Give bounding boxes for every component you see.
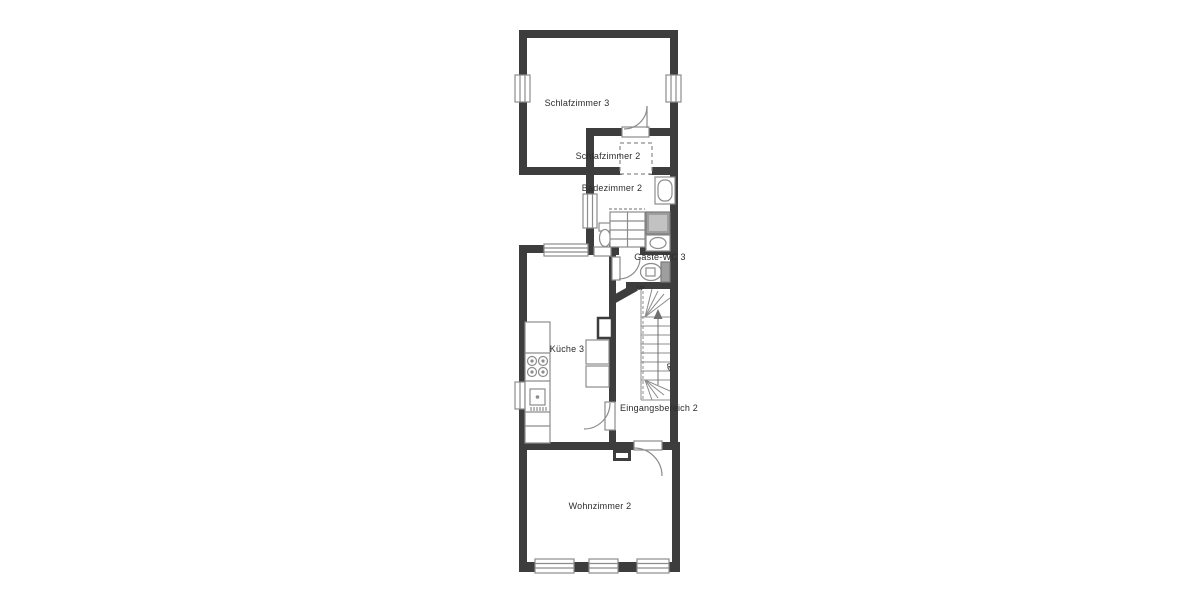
- wall: [672, 442, 680, 572]
- room-label-bathroom2: Badezimmer 2: [562, 183, 662, 193]
- stair-up-label-top: UP: [637, 286, 645, 292]
- door-living-room: [634, 441, 662, 476]
- door-bedroom: [622, 106, 649, 137]
- room-label-living: Wohnzimmer 2: [550, 501, 650, 511]
- toilet-icon: [599, 223, 611, 247]
- wall: [519, 442, 527, 572]
- window: [589, 559, 618, 573]
- room-label-bedroom2: Schlafzimmer 2: [558, 151, 658, 161]
- kitchen-counter: [525, 322, 550, 443]
- room-label-guest-wc: Gäste-WC 3: [610, 252, 710, 262]
- door-leaf-bathroom: [594, 247, 611, 256]
- stair-up-label-bottom: UP: [665, 363, 671, 371]
- door-swing-arc: [624, 106, 647, 129]
- wall: [609, 430, 616, 442]
- wall: [649, 128, 678, 136]
- stair-arrow-icon: [654, 309, 663, 319]
- toilet-icon: [641, 262, 671, 282]
- window: [535, 559, 574, 573]
- wall-stub-inner: [616, 453, 628, 458]
- shower-stall-icon: [646, 212, 670, 234]
- window: [544, 244, 588, 256]
- room-label-bedroom3: Schlafzimmer 3: [527, 98, 627, 108]
- walls: [519, 30, 680, 572]
- floorplan-canvas: UP UP Schlafzimmer 3 Schlafzimmer 2 Bade…: [0, 0, 1200, 600]
- staircase: UP UP: [637, 286, 671, 400]
- room-label-kitchen: Küche 3: [517, 344, 617, 354]
- window: [637, 559, 669, 573]
- appliance-box: [586, 366, 609, 387]
- shower-icon: [609, 209, 645, 247]
- window: [583, 194, 597, 228]
- washbasin-icon: [646, 235, 670, 251]
- wall: [519, 167, 622, 175]
- wall: [519, 30, 678, 38]
- door-swing-arc: [634, 448, 662, 476]
- shaft-icon: [598, 318, 612, 338]
- room-label-entrance: Eingangsbereich 2: [589, 403, 729, 413]
- window: [666, 75, 681, 102]
